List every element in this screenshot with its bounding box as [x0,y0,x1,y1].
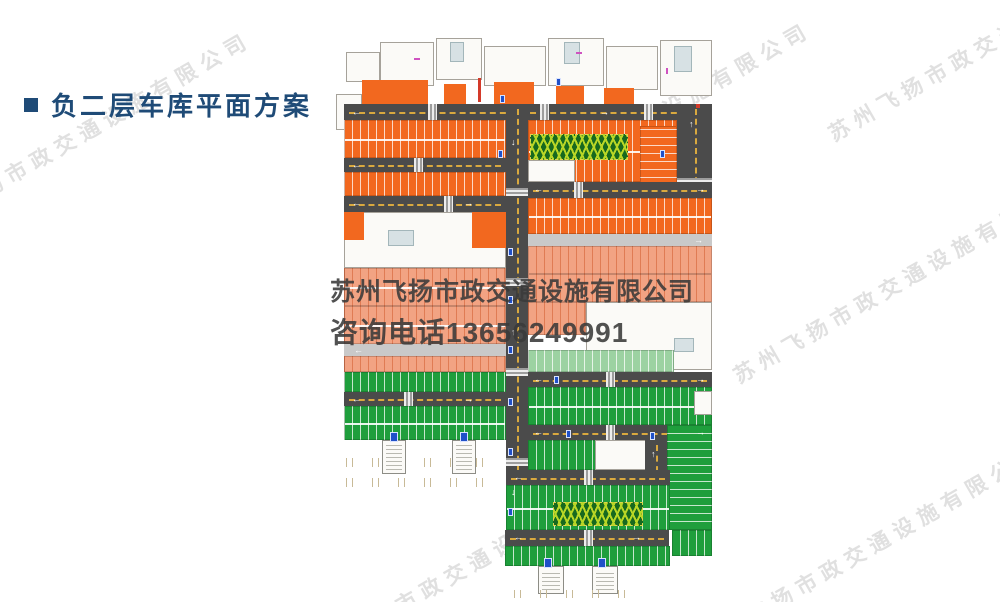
watermark-text: 苏州飞扬市政交通设施有限公司 [693,436,1000,602]
parking-row-light-green [528,350,674,372]
parking-area-orange [556,86,584,104]
crosswalk [506,368,528,376]
accent-mark [576,52,582,54]
parking-row-pink [344,356,506,372]
drive-lane-horizontal [528,182,712,198]
parking-row-green [528,387,712,425]
page-title-text: 负二层车库平面方案 [51,86,312,123]
lane-arrow-icon: ← [352,108,361,117]
sign-marker [500,95,505,103]
crosswalk [584,530,593,546]
lane-arrow-icon: → [464,395,473,404]
crosswalk [428,104,437,120]
watermark-text: 苏州飞扬市政交通设施有限公司 [728,168,1000,390]
lane-arrow-icon: ↓ [511,488,516,497]
stairwell-tint [388,230,414,246]
stairwell-tint [450,42,464,62]
parking-row-orange [344,120,506,158]
drive-lane-horizontal [344,196,506,212]
sign-marker [544,558,552,568]
building-block [595,440,650,470]
crosswalk [506,188,528,196]
accent-mark [414,58,420,60]
lane-arrow-icon: ← [352,395,361,404]
accent-mark [666,68,668,74]
sign-marker [508,398,513,406]
lane-arrow-icon: ↑ [651,450,656,459]
crosswalk [606,372,615,387]
sign-marker [556,78,561,86]
drive-lane-horizontal [344,392,506,406]
crosswalk [414,158,423,172]
lane-arrow-icon: ← [534,375,543,384]
parking-area-orange [344,212,364,240]
lane-arrow-icon: → [464,199,473,208]
sign-marker [508,508,513,516]
lane-arrow-icon: ← [352,161,361,170]
parking-row-green [344,406,506,440]
ramp-chevron [553,502,643,526]
column-grid-marks [514,590,644,598]
lane-arrow-icon: ← [534,185,543,194]
stairwell-tint [674,46,692,72]
crosswalk [506,458,528,466]
sign-marker [498,150,503,158]
sign-marker [660,150,665,158]
drive-lane-horizontal [344,158,506,172]
building-block [484,46,546,86]
sign-marker [460,432,468,442]
building-block [346,52,380,82]
stair-core [382,440,406,474]
accent-mark [696,104,700,108]
lane-arrow-icon: → [696,185,705,194]
parking-row-orange [528,198,712,234]
crosswalk [444,196,453,212]
sign-marker [598,558,606,568]
lane-arrow-icon: → [600,108,609,117]
column-grid-marks [346,478,486,487]
crosswalk [606,425,615,440]
sign-marker [508,448,513,456]
lane-arrow-icon: ← [514,473,523,482]
parking-row-green [344,372,506,392]
lane-arrow-icon: → [694,236,703,245]
title-bullet-icon [24,98,38,112]
sign-marker [650,432,655,440]
building-block [528,160,575,182]
lane-arrow-icon: ↑ [689,120,694,129]
sign-marker [566,430,571,438]
sign-marker [554,376,559,384]
lane-arrow-icon: ← [514,533,523,542]
crosswalk [404,392,413,406]
lane-arrow-icon: ← [534,428,543,437]
parking-row-pink [528,246,712,274]
parking-row-orange [344,172,506,196]
parking-area-orange [362,80,428,104]
page-title: 负二层车库平面方案 [24,86,312,123]
lane-arrow-icon: → [696,375,705,384]
lane-arrow-icon: ↓ [511,138,516,147]
lane-arrow-icon: → [696,428,705,437]
phone-overlay-text: 咨询电话13656249991 [330,311,694,351]
ramp-chevron [530,134,628,160]
sign-marker [508,248,513,256]
slide: 苏州飞扬市政交通设施有限公司 苏州飞扬市政交通设施有限公司 苏州飞扬市政交通设施… [0,0,1000,602]
parking-row-orange [640,126,677,186]
building-block [606,46,658,90]
crosswalk [644,104,653,120]
overlay-text: 苏州飞扬市政交通设施有限公司 咨询电话13656249991 [330,272,694,351]
parking-area-orange [444,84,466,104]
company-overlay-text: 苏州飞扬市政交通设施有限公司 [330,272,694,308]
parking-area-orange [472,212,506,248]
building-block [694,391,712,415]
lane-arrow-icon: → [632,533,641,542]
crosswalk [584,470,593,485]
watermark-text: 苏州飞扬市政交通设施有限公司 [823,0,1000,148]
accent-mark [478,78,481,102]
sign-marker [390,432,398,442]
parking-row-green [667,425,712,530]
watermark-text: 苏州飞扬市政交通设施有限公司 [0,24,257,246]
crosswalk [574,182,583,198]
parking-area-orange [604,88,634,104]
stair-core [452,440,476,474]
parking-row-green [672,530,712,556]
drive-lane-horizontal [344,104,712,120]
crosswalk [540,104,549,120]
lane-arrow-icon: ← [352,199,361,208]
parking-row-green [505,546,670,566]
drive-lane-light [528,234,712,246]
